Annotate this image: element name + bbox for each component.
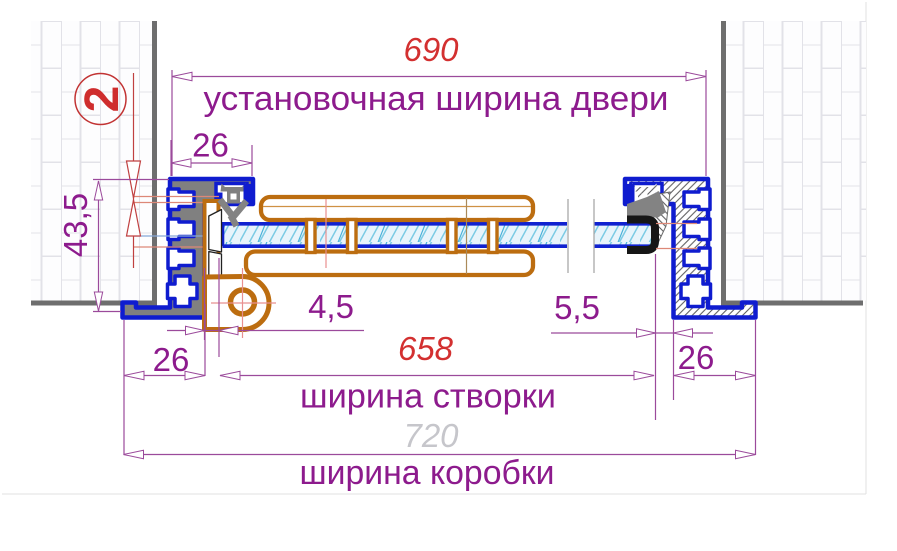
svg-text:26: 26 bbox=[192, 127, 229, 164]
svg-text:720: 720 bbox=[403, 417, 459, 454]
svg-text:26: 26 bbox=[153, 341, 190, 378]
svg-text:ширина коробки: ширина коробки bbox=[300, 454, 555, 492]
svg-text:5,5: 5,5 bbox=[554, 289, 600, 326]
svg-text:690: 690 bbox=[403, 31, 459, 68]
svg-text:2: 2 bbox=[76, 86, 129, 113]
svg-text:установочная ширина двери: установочная ширина двери bbox=[204, 80, 669, 118]
svg-text:ширина створки: ширина створки bbox=[300, 378, 556, 416]
svg-text:4,5: 4,5 bbox=[308, 288, 354, 325]
svg-text:658: 658 bbox=[398, 330, 454, 367]
svg-text:43,5: 43,5 bbox=[57, 193, 94, 257]
svg-text:26: 26 bbox=[678, 339, 715, 376]
